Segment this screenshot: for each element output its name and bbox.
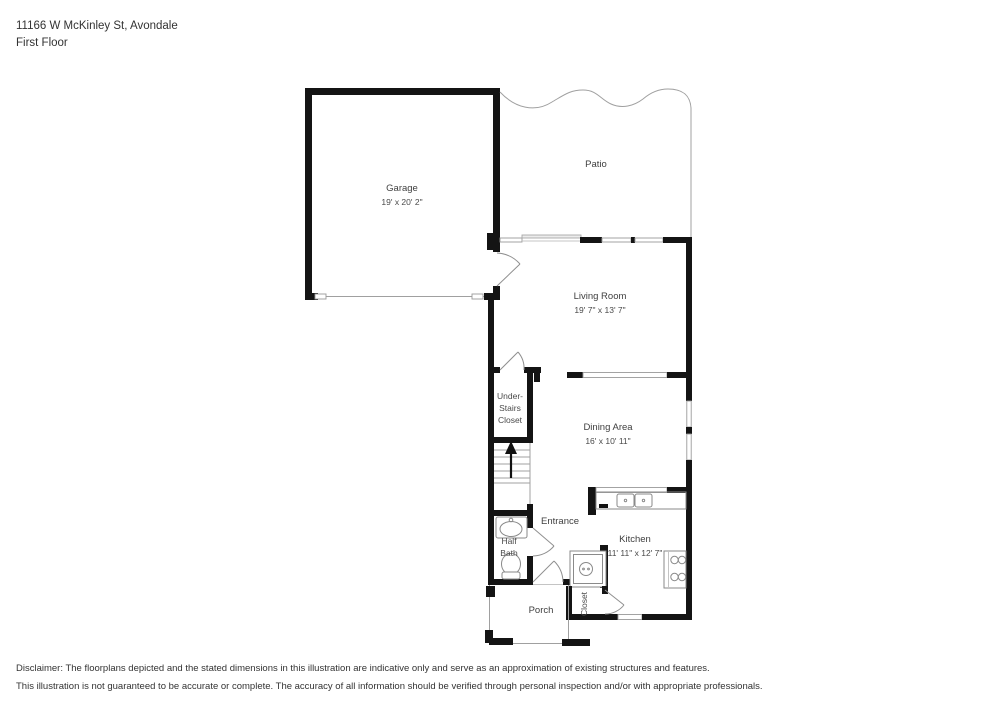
half-bath-door-swing-icon	[533, 528, 554, 556]
stove-icon	[664, 551, 686, 588]
floorplan: Garage 19' x 20' 2" Patio Living Room 19…	[0, 0, 1000, 707]
kitchen-sink-icon	[617, 494, 652, 507]
dining-area-label: Dining Area	[583, 422, 632, 434]
garage-entry-door-swing-icon	[497, 253, 520, 286]
disclaimer-line1: Disclaimer: The floorplans depicted and …	[16, 663, 710, 674]
kitchen-dims: 11' 11" x 12' 7"	[608, 547, 663, 559]
front-door-swing-icon	[533, 561, 563, 582]
under-stairs-closet-label-line1: Under-	[497, 390, 523, 402]
dining-windows	[686, 401, 692, 620]
closet-label: Closet	[578, 592, 590, 616]
patio-label: Patio	[585, 159, 607, 171]
dining-area-dims: 16' x 10' 11"	[585, 435, 630, 447]
living-dining-divider	[567, 372, 686, 378]
living-room-label: Living Room	[574, 291, 627, 303]
stairs-up-arrow-icon	[505, 441, 517, 478]
under-stairs-closet-door-swing-icon	[500, 352, 524, 370]
garage-dims: 19' x 20' 2"	[381, 196, 422, 208]
under-stairs-closet-label-line3: Closet	[498, 414, 522, 426]
garage-label: Garage	[386, 183, 418, 195]
kitchen-label: Kitchen	[619, 534, 651, 546]
under-stairs-closet-label-line2: Stairs	[499, 402, 521, 414]
floorplan-page: 11166 W McKinley St, Avondale First Floo…	[0, 0, 1000, 707]
living-room-dims: 19' 7" x 13' 7"	[574, 304, 625, 316]
floorplan-drawing	[0, 0, 1000, 707]
disclaimer-line2: This illustration is not guaranteed to b…	[16, 681, 763, 692]
garage-door-icon	[315, 294, 484, 299]
entrance-label: Entrance	[541, 516, 579, 528]
half-bath-label-line1: Half	[501, 535, 516, 547]
half-bath-label-line2: Bath	[500, 547, 518, 559]
washer-icon	[570, 551, 606, 587]
front-wall	[533, 579, 572, 585]
porch-label: Porch	[529, 605, 554, 617]
